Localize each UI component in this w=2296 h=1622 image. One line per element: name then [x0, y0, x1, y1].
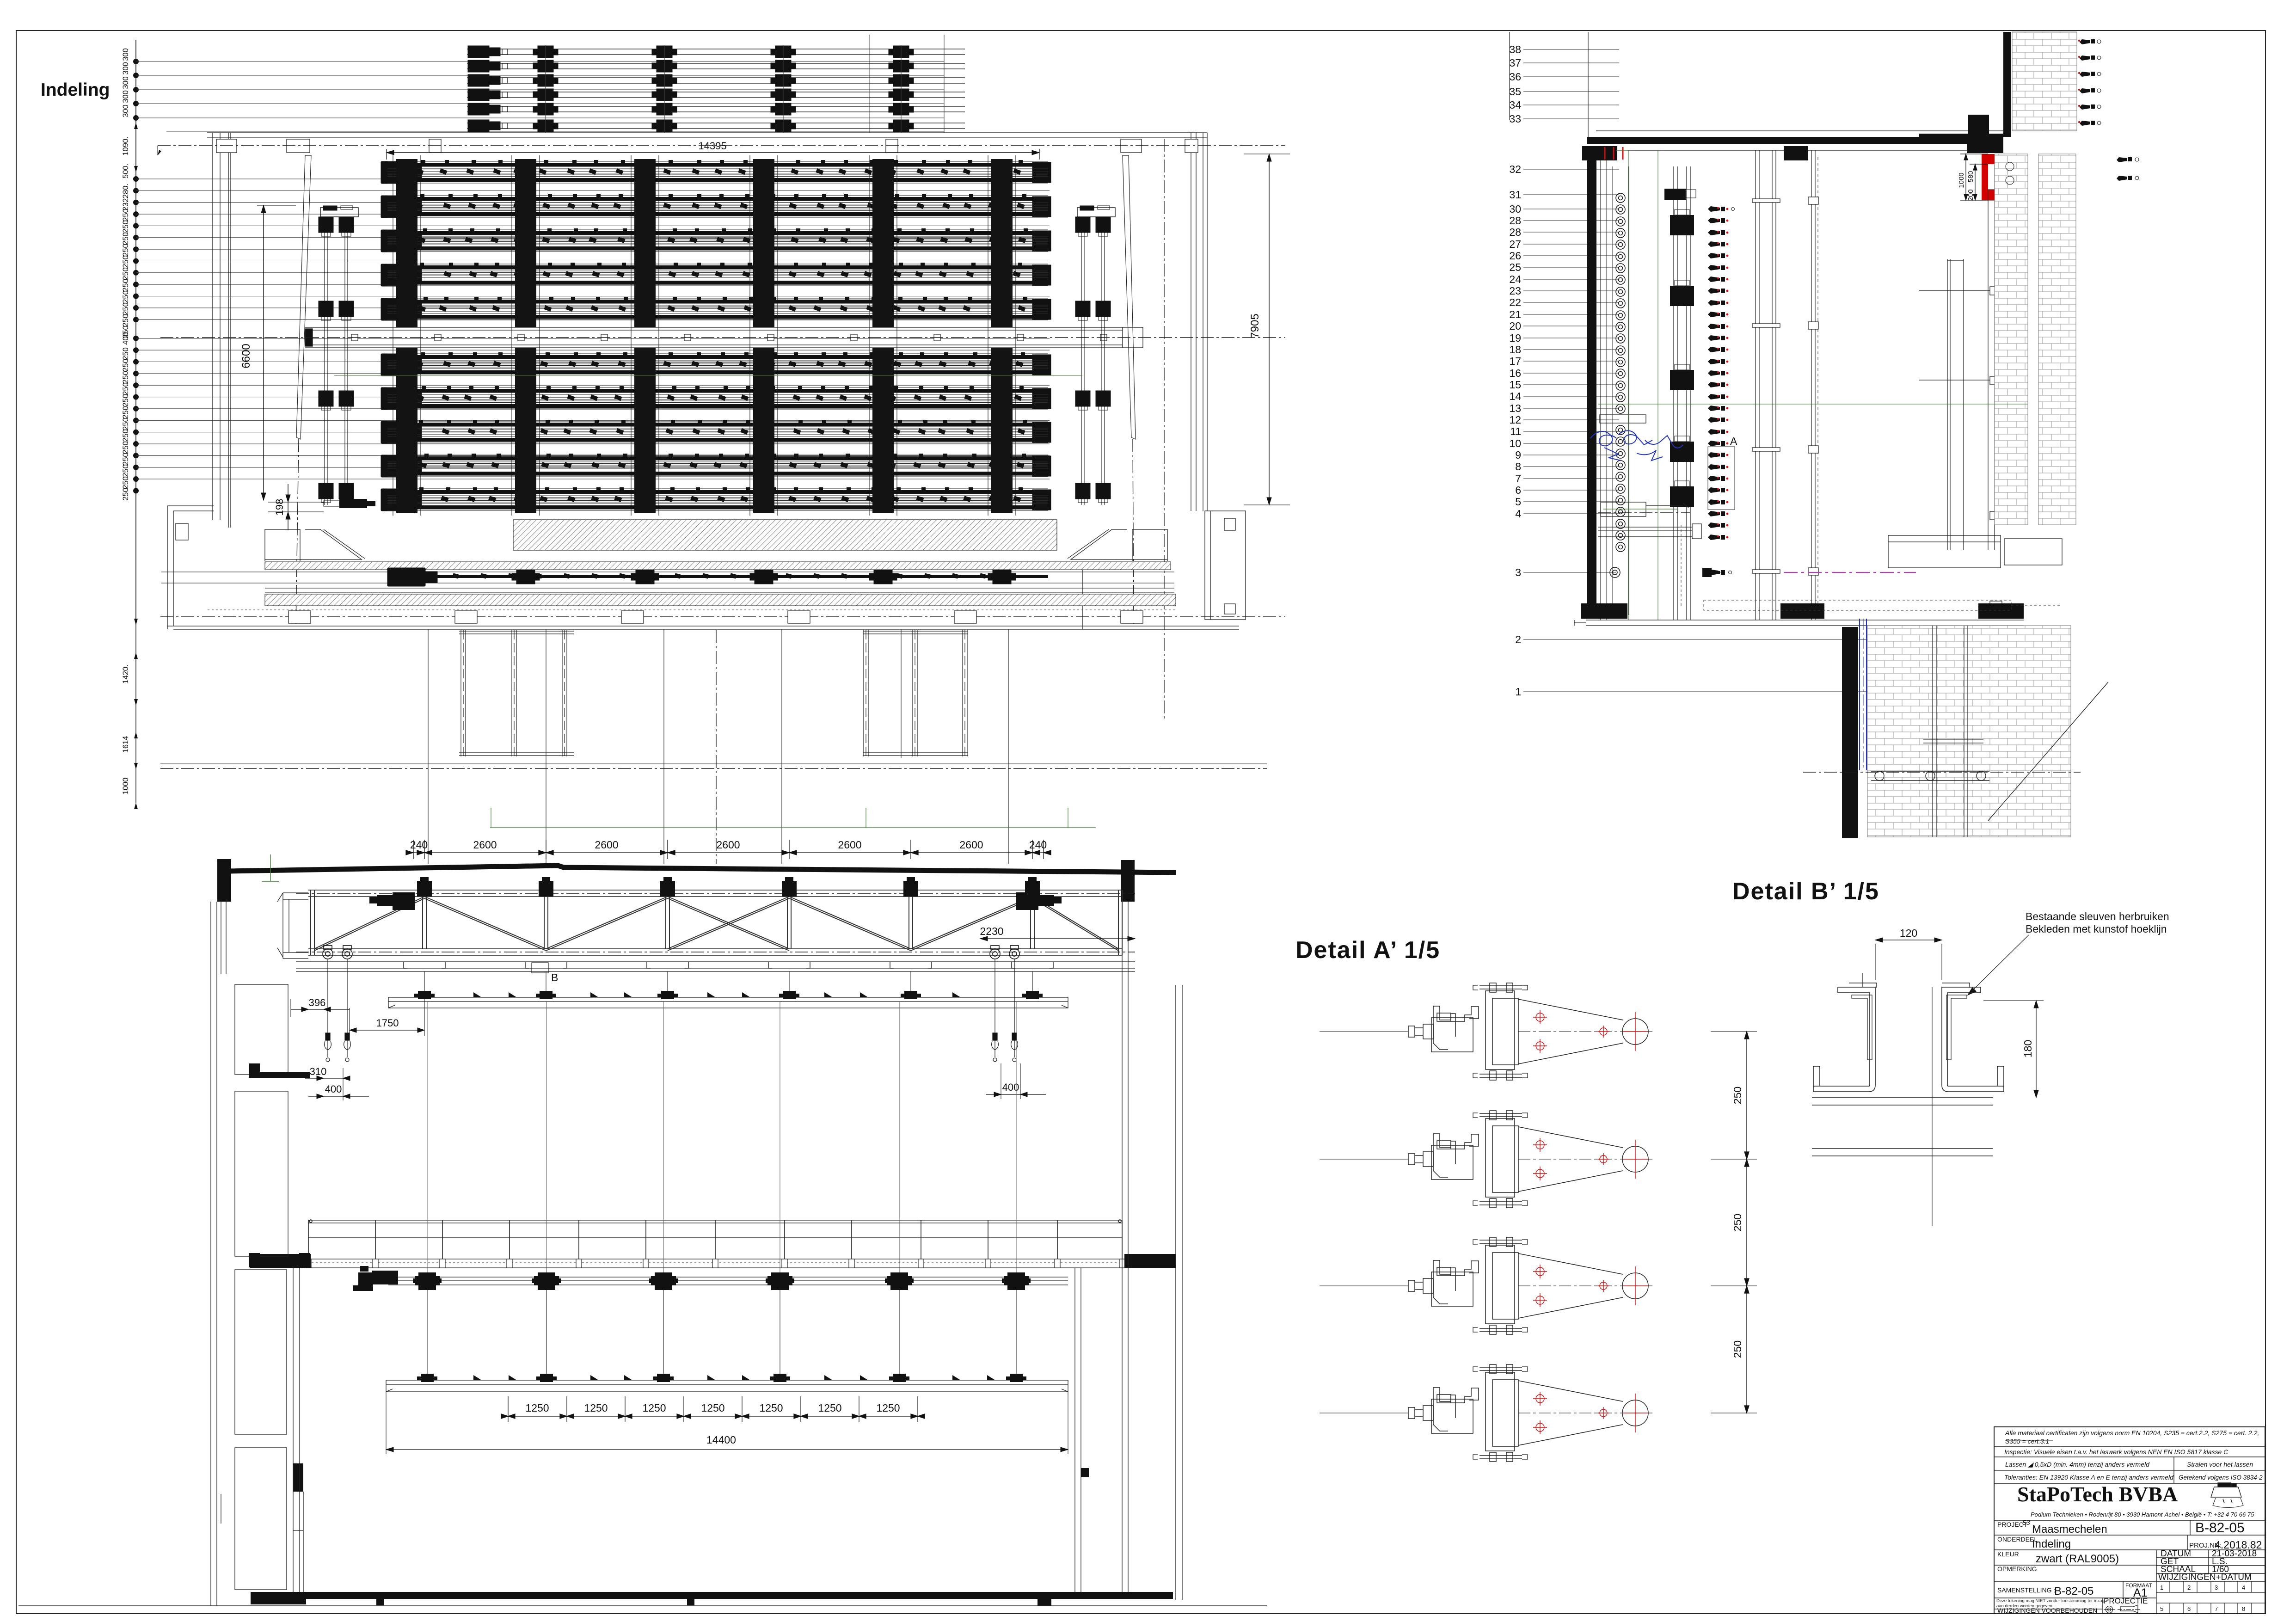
- svg-text:250: 250: [122, 220, 130, 233]
- svg-text:240: 240: [410, 839, 428, 851]
- svg-text:31: 31: [1509, 189, 1521, 201]
- svg-text:300: 300: [122, 104, 130, 117]
- svg-text:2600: 2600: [838, 839, 861, 851]
- svg-text:36: 36: [1509, 71, 1521, 83]
- svg-text:250: 250: [122, 209, 130, 221]
- svg-text:1250: 1250: [876, 1402, 900, 1414]
- svg-text:2: 2: [1515, 633, 1521, 645]
- svg-text:23: 23: [1509, 285, 1521, 297]
- svg-text:7: 7: [1515, 473, 1521, 485]
- svg-text:2: 2: [2187, 1584, 2191, 1591]
- svg-text:Alle materiaal certificaten zi: Alle materiaal certificaten zijn volgens…: [2005, 1429, 2259, 1437]
- svg-text:250: 250: [122, 279, 130, 292]
- svg-text:250: 250: [122, 359, 130, 372]
- svg-text:Inspectie: Visuele eisen t.a.v: Inspectie: Visuele eisen t.a.v. het lasw…: [2004, 1448, 2228, 1456]
- svg-text:StaPoTech BVBA: StaPoTech BVBA: [2017, 1482, 2178, 1506]
- svg-text:6: 6: [2187, 1605, 2191, 1612]
- svg-text:Bekleden met kunstof hoeklijn: Bekleden met kunstof hoeklijn: [2026, 923, 2167, 935]
- svg-text:37: 37: [1509, 57, 1521, 69]
- svg-text:Podium Technieken • Rodenrijt: Podium Technieken • Rodenrijt 80 • 3930 …: [2031, 1511, 2254, 1518]
- svg-text:198: 198: [274, 499, 285, 516]
- svg-text:250: 250: [122, 488, 130, 501]
- svg-text:250: 250: [122, 244, 130, 257]
- svg-text:240: 240: [1029, 839, 1047, 851]
- svg-text:11: 11: [1510, 425, 1521, 437]
- svg-text:6600: 6600: [240, 344, 252, 368]
- svg-text:OPMERKING: OPMERKING: [1997, 1565, 2037, 1573]
- svg-text:32: 32: [1509, 163, 1521, 175]
- svg-text:28: 28: [1509, 215, 1521, 227]
- svg-text:Stralen voor het lassen: Stralen voor het lassen: [2187, 1461, 2253, 1468]
- svg-text:250: 250: [122, 232, 130, 245]
- svg-text:4: 4: [2242, 1584, 2245, 1591]
- svg-text:WIJZIGINGEN VOORBEHOUDEN: WIJZIGINGEN VOORBEHOUDEN: [1997, 1607, 2097, 1614]
- svg-text:15: 15: [1509, 379, 1521, 391]
- svg-text:250: 250: [122, 302, 130, 315]
- svg-text:Toleranties: EN 13920 Klasse A: Toleranties: EN 13920 Klasse A en E tenz…: [2004, 1474, 2174, 1481]
- svg-text:250: 250: [122, 382, 130, 395]
- svg-text:250: 250: [1731, 1214, 1743, 1231]
- svg-text:250: 250: [122, 453, 130, 466]
- svg-text:250: 250: [122, 314, 130, 327]
- svg-text:1090.: 1090.: [122, 136, 130, 155]
- svg-text:300: 300: [122, 62, 130, 75]
- svg-text:1614: 1614: [122, 736, 130, 753]
- svg-text:19: 19: [1509, 332, 1521, 344]
- svg-text:16: 16: [1509, 367, 1521, 379]
- svg-text:26: 26: [1509, 250, 1521, 262]
- svg-text:6: 6: [1515, 484, 1521, 496]
- svg-text:35: 35: [1509, 86, 1521, 98]
- svg-text:400: 400: [325, 1083, 342, 1095]
- svg-text:21: 21: [1509, 308, 1521, 320]
- svg-text:PROJECTIE: PROJECTIE: [2104, 1597, 2148, 1605]
- svg-text:1000: 1000: [1958, 172, 1965, 188]
- svg-text:Indeling: Indeling: [2032, 1538, 2071, 1550]
- svg-text:7: 7: [2215, 1605, 2218, 1612]
- svg-text:12: 12: [1509, 414, 1521, 426]
- svg-text:9: 9: [1515, 449, 1521, 461]
- svg-text:1250: 1250: [701, 1402, 724, 1414]
- svg-text:Detail B’ 1/5: Detail B’ 1/5: [1732, 878, 1879, 905]
- svg-text:24: 24: [1509, 273, 1521, 285]
- svg-text:200: 200: [1967, 189, 1975, 201]
- svg-text:3: 3: [1515, 566, 1521, 578]
- svg-text:B: B: [551, 971, 558, 983]
- svg-text:250: 250: [1731, 1340, 1743, 1358]
- svg-text:B-82-05: B-82-05: [2195, 1520, 2245, 1536]
- svg-text:Deze tekening mag NIET zonder: Deze tekening mag NIET zonder toestemmin…: [1996, 1598, 2107, 1604]
- svg-text:310: 310: [310, 1066, 327, 1077]
- svg-text:Detail A’ 1/5: Detail A’ 1/5: [1295, 937, 1440, 964]
- svg-text:Indeling: Indeling: [41, 80, 110, 100]
- svg-text:A: A: [1730, 435, 1737, 447]
- svg-text:250: 250: [122, 290, 130, 303]
- svg-text:120: 120: [1900, 927, 1917, 939]
- svg-text:14: 14: [1509, 390, 1521, 402]
- svg-text:500.: 500.: [122, 164, 130, 178]
- svg-text:400: 400: [122, 332, 130, 345]
- svg-text:250: 250: [122, 429, 130, 442]
- svg-text:1: 1: [1515, 686, 1521, 698]
- svg-text:53: 53: [2022, 1519, 2030, 1527]
- svg-text:2230: 2230: [980, 925, 1003, 937]
- svg-text:300: 300: [122, 90, 130, 103]
- svg-text:1250: 1250: [818, 1402, 841, 1414]
- svg-text:27: 27: [1509, 238, 1521, 250]
- svg-text:22: 22: [1509, 296, 1521, 308]
- svg-text:33: 33: [1509, 113, 1521, 125]
- svg-text:250: 250: [122, 476, 130, 489]
- svg-text:1250: 1250: [584, 1402, 608, 1414]
- svg-text:300: 300: [122, 48, 130, 61]
- svg-text:4: 4: [1515, 508, 1521, 520]
- svg-text:zwart (RAL9005): zwart (RAL9005): [2036, 1553, 2119, 1565]
- svg-text:KLEUR: KLEUR: [1997, 1550, 2019, 1558]
- svg-text:8: 8: [1515, 461, 1521, 473]
- svg-text:1: 1: [2160, 1584, 2163, 1591]
- svg-text:400: 400: [1002, 1081, 1019, 1093]
- svg-text:1420.: 1420.: [122, 664, 130, 683]
- svg-text:B-82-05: B-82-05: [2054, 1585, 2093, 1597]
- svg-text:17: 17: [1509, 355, 1521, 367]
- svg-text:Bestaande sleuven herbruiken: Bestaande sleuven herbruiken: [2026, 910, 2169, 922]
- svg-text:580: 580: [1967, 171, 1975, 182]
- svg-text:250: 250: [122, 406, 130, 419]
- svg-text:14395: 14395: [698, 140, 726, 152]
- svg-text:30: 30: [1509, 203, 1521, 215]
- svg-text:250: 250: [122, 347, 130, 360]
- svg-text:7905: 7905: [1249, 313, 1261, 338]
- svg-text:2600: 2600: [595, 839, 618, 851]
- svg-text:1250: 1250: [642, 1402, 666, 1414]
- svg-text:1250: 1250: [759, 1402, 783, 1414]
- svg-text:Lassen ◢ 0,5xD (min. 4mm) ten: Lassen ◢ 0,5xD (min. 4mm) tenzij anders …: [2005, 1461, 2150, 1468]
- svg-text:34: 34: [1509, 99, 1521, 111]
- svg-text:250: 250: [122, 441, 130, 454]
- svg-text:300: 300: [122, 76, 130, 89]
- svg-text:18: 18: [1509, 344, 1521, 356]
- svg-text:5: 5: [1515, 496, 1521, 508]
- svg-text:250: 250: [1731, 1087, 1743, 1104]
- svg-text:1000: 1000: [122, 778, 130, 795]
- svg-text:S355 = cert.3.1: S355 = cert.3.1: [2005, 1438, 2049, 1445]
- svg-text:38: 38: [1509, 43, 1521, 55]
- svg-text:1750: 1750: [376, 1017, 399, 1029]
- svg-text:250: 250: [122, 255, 130, 268]
- svg-text:5: 5: [2160, 1605, 2163, 1612]
- svg-text:250: 250: [122, 394, 130, 407]
- svg-text:180: 180: [2022, 1040, 2034, 1057]
- svg-text:8: 8: [2242, 1605, 2245, 1612]
- svg-text:1250: 1250: [525, 1402, 549, 1414]
- svg-text:250: 250: [122, 267, 130, 280]
- svg-text:Maasmechelen: Maasmechelen: [2032, 1523, 2107, 1536]
- svg-text:250: 250: [122, 418, 130, 430]
- svg-text:14400: 14400: [706, 1434, 736, 1446]
- svg-text:WIJZIGINGEN+DATUM: WIJZIGINGEN+DATUM: [2158, 1573, 2252, 1582]
- svg-text:28: 28: [1509, 226, 1521, 238]
- svg-text:250: 250: [122, 371, 130, 384]
- svg-text:25: 25: [1509, 261, 1521, 273]
- svg-text:SAMENSTELLING :: SAMENSTELLING :: [1997, 1586, 2055, 1594]
- svg-text:3: 3: [2215, 1584, 2218, 1591]
- svg-text:20: 20: [1509, 320, 1521, 332]
- svg-text:396: 396: [309, 997, 326, 1008]
- svg-text:2600: 2600: [959, 839, 983, 851]
- svg-text:250: 250: [122, 464, 130, 477]
- svg-text:2600: 2600: [716, 839, 740, 851]
- svg-text:2600: 2600: [473, 839, 497, 851]
- svg-text:10: 10: [1509, 437, 1521, 449]
- svg-text:Getekend volgens ISO 3834-2: Getekend volgens ISO 3834-2: [2179, 1474, 2263, 1481]
- svg-text:13: 13: [1509, 402, 1521, 414]
